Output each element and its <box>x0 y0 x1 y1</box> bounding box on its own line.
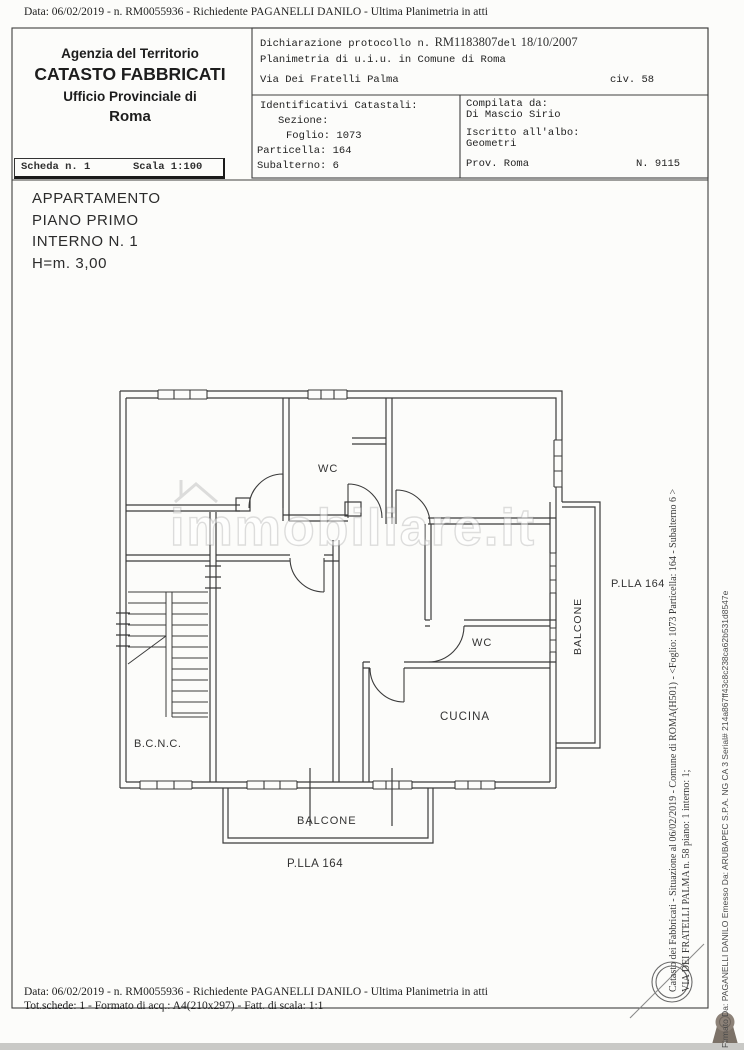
apartment-line3: INTERNO N. 1 <box>32 231 161 253</box>
side-signature-line: Firmato Da: PAGANELLI DANILO Emesso Da: … <box>720 591 730 1048</box>
protocol-line: Dichiarazione protocollo n. RM1183807del… <box>260 33 578 51</box>
parcel-label-bottom: P.LLA 164 <box>287 858 343 870</box>
room-label-balcone-bottom: BALCONE <box>297 815 357 827</box>
identifiers-subalterno: Subalterno: 6 <box>257 160 339 172</box>
side-cadastral-line: Catasto dei Fabbricati - Situazione al 0… <box>668 489 679 992</box>
exterior-walls <box>120 391 562 788</box>
scan-page-edge <box>0 1043 744 1050</box>
room-label-bcnc: B.C.N.C. <box>134 738 181 750</box>
side-address-line: VIA DEI FRATELLI PALMA n. 58 piano: 1 in… <box>681 770 692 992</box>
agency-line1: Agenzia del Territorio <box>25 46 235 61</box>
watermark-text: immobiliare.it <box>170 498 536 558</box>
compiler-reg-number: N. 9115 <box>636 158 680 170</box>
planimetria-line: Planimetria di u.i.u. in Comune di Roma <box>260 54 506 66</box>
identifiers-foglio: Foglio: 1073 <box>286 130 362 142</box>
identifiers-particella: Particella: 164 <box>257 145 352 157</box>
identifiers-sezione: Sezione: <box>278 115 328 127</box>
protocol-number: RM1183807 <box>435 35 498 49</box>
compiler-name: Di Mascio Sirio <box>466 109 561 121</box>
agency-line2: CATASTO FABBRICATI <box>25 64 235 85</box>
interior-walls <box>116 398 556 782</box>
bottom-footer-line: Tot.schede: 1 - Formato di acq.: A4(210x… <box>24 1000 323 1012</box>
identifiers-title: Identificativi Catastali: <box>260 100 418 112</box>
room-label-cucina: CUCINA <box>440 711 490 723</box>
staircase <box>128 592 208 717</box>
room-label-wc-top: WC <box>318 463 338 475</box>
declaration-box: Dichiarazione protocollo n. RM1183807del… <box>252 28 708 178</box>
civ-number: civ. 58 <box>610 74 654 86</box>
apartment-line2: PIANO PRIMO <box>32 210 161 232</box>
protocol-date: 18/10/2007 <box>521 35 578 49</box>
parcel-label-right: P.LLA 164 <box>611 578 665 590</box>
sheet-number: Scheda n. 1 <box>21 161 90 173</box>
compiler-prov: Prov. Roma <box>466 158 529 170</box>
bottom-data-line: Data: 06/02/2019 - n. RM0055936 - Richie… <box>24 986 488 998</box>
window-hatches <box>140 388 564 790</box>
top-data-line: Data: 06/02/2019 - n. RM0055936 - Richie… <box>24 6 488 18</box>
room-label-balcone-right: BALCONE <box>572 598 584 655</box>
apartment-line4: H=m. 3,00 <box>32 253 161 275</box>
sheet-scale: Scala 1:100 <box>133 161 202 173</box>
protocol-label: Dichiarazione protocollo n. <box>260 38 430 50</box>
stamp-circle-icon <box>630 944 704 1018</box>
apartment-line1: APPARTAMENTO <box>32 188 161 210</box>
street-line: Via Dei Fratelli Palma <box>260 74 399 86</box>
agency-line4: Roma <box>25 108 235 125</box>
sheet-bar: Scheda n. 1 Scala 1:100 <box>14 158 225 179</box>
compiler-albo-value: Geometri <box>466 138 516 150</box>
protocol-del: del <box>497 38 516 50</box>
scanned-cadastral-document: immobiliare.it Data: 06/02/2019 - n. RM0… <box>0 0 744 1050</box>
apartment-description: APPARTAMENTO PIANO PRIMO INTERNO N. 1 H=… <box>32 188 161 274</box>
room-label-wc-right: WC <box>472 637 492 649</box>
agency-line3: Ufficio Provinciale di <box>25 89 235 104</box>
agency-header: Agenzia del Territorio CATASTO FABBRICAT… <box>25 46 235 125</box>
